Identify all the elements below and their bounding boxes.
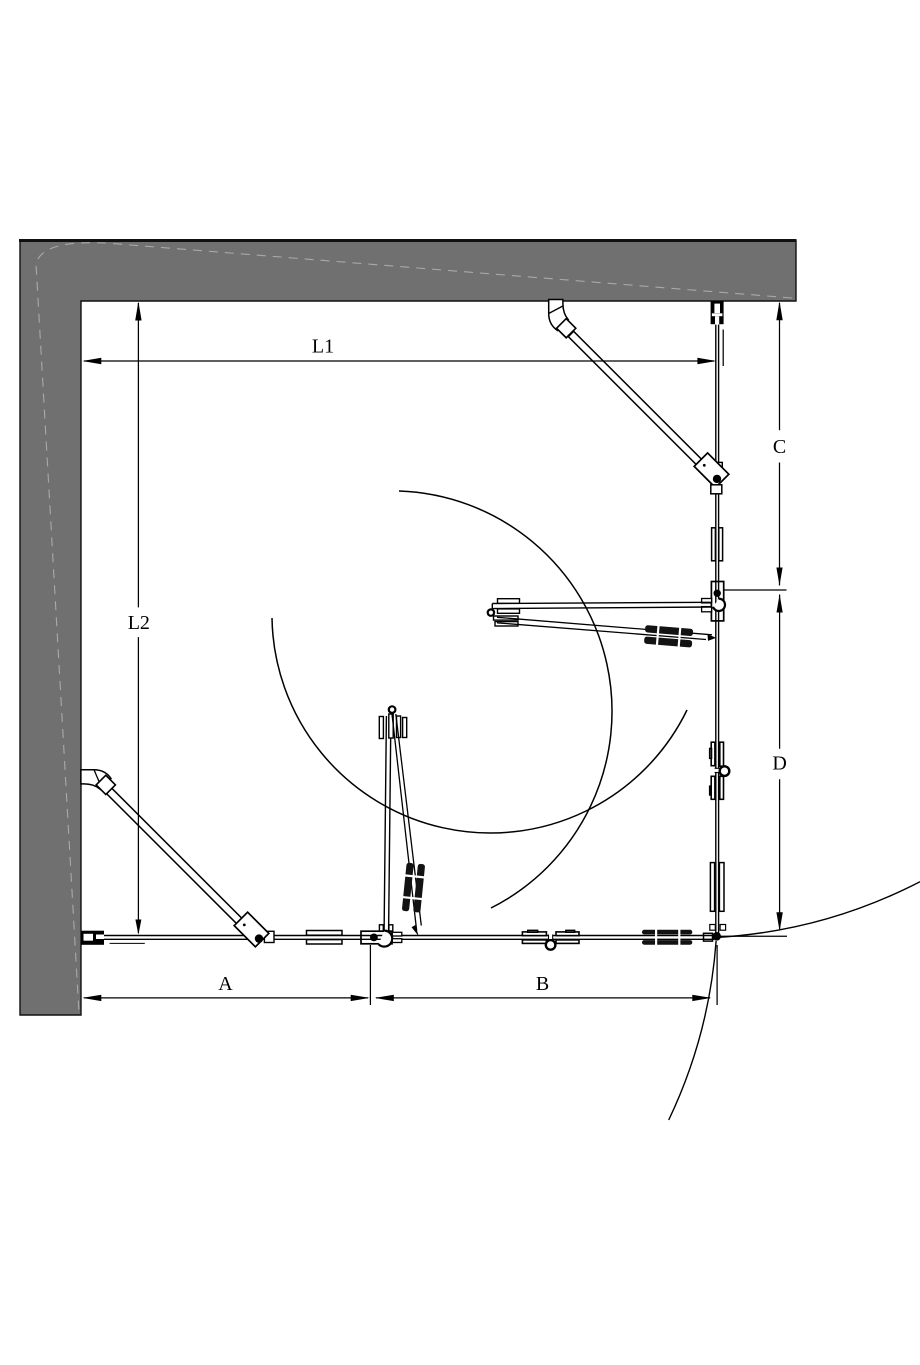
svg-text:L1: L1: [312, 335, 334, 357]
svg-text:B: B: [536, 973, 549, 995]
svg-text:L2: L2: [128, 612, 150, 634]
svg-text:C: C: [773, 436, 786, 458]
svg-text:A: A: [218, 973, 233, 995]
svg-text:D: D: [772, 752, 786, 774]
